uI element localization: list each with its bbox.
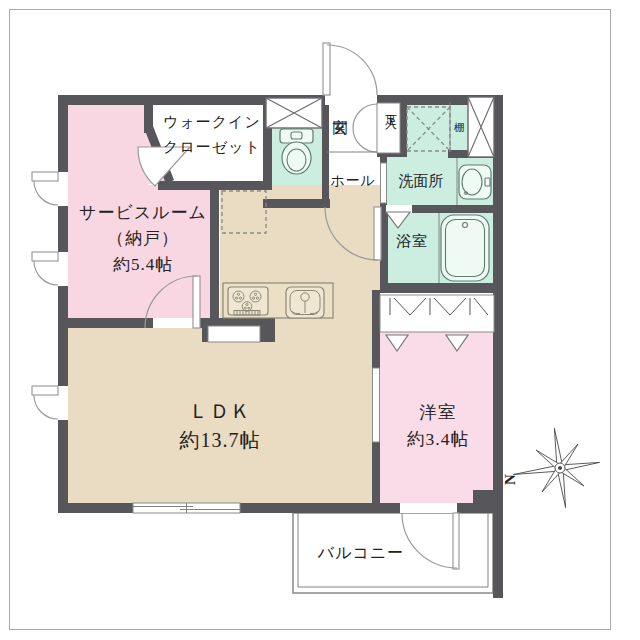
- ldk-size: 約13.7帖: [180, 426, 261, 455]
- compass-icon: [514, 428, 600, 507]
- label-entrance: 玄関: [330, 107, 349, 111]
- label-washroom: 洗面所: [399, 172, 444, 191]
- casement-window-icon: [32, 172, 58, 205]
- toilet-icon: [280, 129, 313, 174]
- pillar-icon: [468, 97, 494, 157]
- label-hall: ホール: [330, 172, 376, 190]
- sliding-door-icon: [381, 163, 387, 203]
- label-walk-in-closet: ウォークイン クローゼット: [163, 110, 261, 160]
- ldk-name: ＬＤＫ: [180, 397, 261, 426]
- service-room-size: 約5.4帖: [79, 252, 207, 278]
- pillar-icon: [266, 98, 322, 128]
- label-balcony: バルコニー: [318, 543, 405, 564]
- wic-line2: クローゼット: [163, 135, 261, 160]
- label-service-room: サービスルーム （納戸） 約5.4帖: [79, 200, 207, 278]
- western-room-name: 洋室: [407, 399, 469, 426]
- kitchen-sink-icon: [286, 287, 324, 318]
- entrance-door-icon: [323, 43, 377, 95]
- sliding-door-icon: [373, 368, 380, 442]
- label-ldk: ＬＤＫ 約13.7帖: [180, 397, 261, 455]
- service-room-name: サービスルーム: [79, 200, 207, 226]
- western-room-size: 約3.4帖: [407, 426, 469, 453]
- floor-plan-canvas: サービスルーム （納戸） 約5.4帖 ウォークイン クローゼット 玄関 下足入 …: [0, 0, 640, 640]
- label-shelf: 棚: [454, 121, 465, 135]
- casement-window-icon: [32, 386, 58, 419]
- compass-north-label: N: [502, 474, 519, 485]
- wic-line1: ウォークイン: [163, 110, 261, 135]
- stove-icon: [228, 287, 268, 315]
- label-bathroom: 浴室: [396, 232, 428, 251]
- sliding-window-icon: [133, 503, 240, 513]
- label-western-room: 洋室 約3.4帖: [407, 399, 469, 453]
- service-room-subname: （納戸）: [79, 226, 207, 252]
- bathtub-icon: [439, 213, 489, 283]
- closet-hanger-pipe-icon: [380, 295, 494, 332]
- casement-window-icon: [32, 252, 58, 285]
- label-shoe-cabinet: 下足入: [382, 105, 399, 108]
